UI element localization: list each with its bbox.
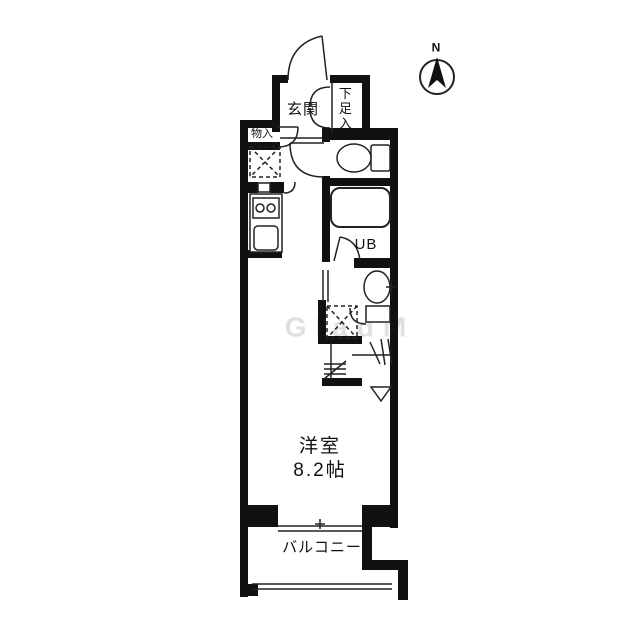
floor-plan-canvas: GladM: [0, 0, 640, 640]
toilet-door-icon: [290, 143, 324, 177]
label-shoe-storage: 下足入: [337, 87, 351, 132]
wall: [322, 378, 362, 386]
balcony-railing-icon: [252, 584, 392, 589]
label-balcony: バルコニー: [282, 540, 362, 556]
wall: [322, 128, 330, 142]
toilet-icon: [337, 144, 390, 172]
north-compass-icon: [420, 57, 454, 94]
washing-machine-space-icon: [327, 306, 357, 338]
wall: [322, 178, 398, 186]
wall-right-outer: [390, 128, 398, 528]
label-genkan: 玄関: [287, 102, 319, 118]
label-storage: 物入: [251, 129, 273, 141]
wall: [322, 186, 330, 262]
wall: [240, 182, 258, 193]
wall-pillar: [362, 505, 398, 527]
wall: [354, 258, 398, 268]
refrigerator-space-icon: [250, 147, 280, 177]
wall: [270, 182, 284, 193]
wall: [362, 75, 370, 135]
folding-partition-vertical-icon: [324, 343, 346, 379]
washroom-door-lines: [323, 270, 328, 302]
label-north: N: [432, 42, 441, 55]
label-main-room-size: 8.2帖: [293, 461, 346, 481]
wall: [248, 584, 258, 596]
room-entry-marker-icon: [371, 387, 391, 401]
kitchen-icon: [250, 194, 282, 252]
wall: [322, 128, 398, 140]
wall-pillar: [240, 505, 278, 527]
label-unit-bath: UB: [355, 237, 378, 253]
storage-door-icon: [278, 127, 298, 147]
bathtub-icon: [331, 188, 390, 227]
washer-door-icon: [350, 306, 390, 324]
label-main-room-name: 洋室: [299, 437, 341, 457]
wall: [398, 560, 408, 600]
entrance-door-icon: [288, 36, 327, 80]
balcony-window-icon: [278, 519, 362, 531]
thin-lines: [250, 36, 454, 589]
